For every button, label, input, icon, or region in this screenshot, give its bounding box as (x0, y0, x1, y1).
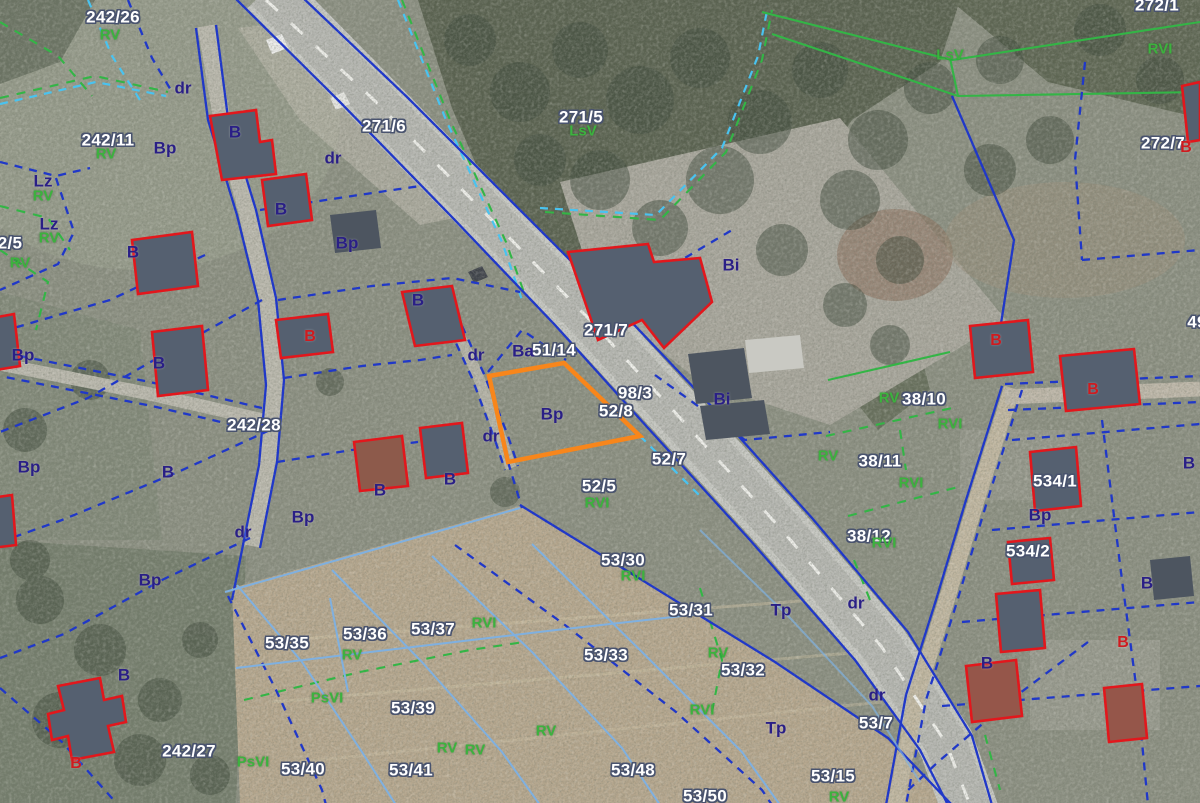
building-outline (132, 232, 198, 294)
building-outline (1030, 447, 1081, 511)
building-outline (996, 590, 1045, 652)
building-outline (354, 436, 408, 491)
building-outline (0, 495, 16, 548)
building-outline (970, 320, 1033, 378)
building-outline (1060, 349, 1140, 411)
map-canvas (0, 0, 1200, 803)
building-outline (152, 326, 208, 396)
noise-texture-light (0, 0, 1200, 803)
building-outline (1008, 538, 1054, 584)
map-viewport[interactable]: 242/26271/6271/5242/11272/1272/72/5271/7… (0, 0, 1200, 803)
building-outline (262, 174, 312, 226)
building-outline (1104, 684, 1147, 742)
building-outline (276, 314, 333, 358)
building-outline (966, 660, 1022, 722)
building-outline (420, 423, 468, 478)
